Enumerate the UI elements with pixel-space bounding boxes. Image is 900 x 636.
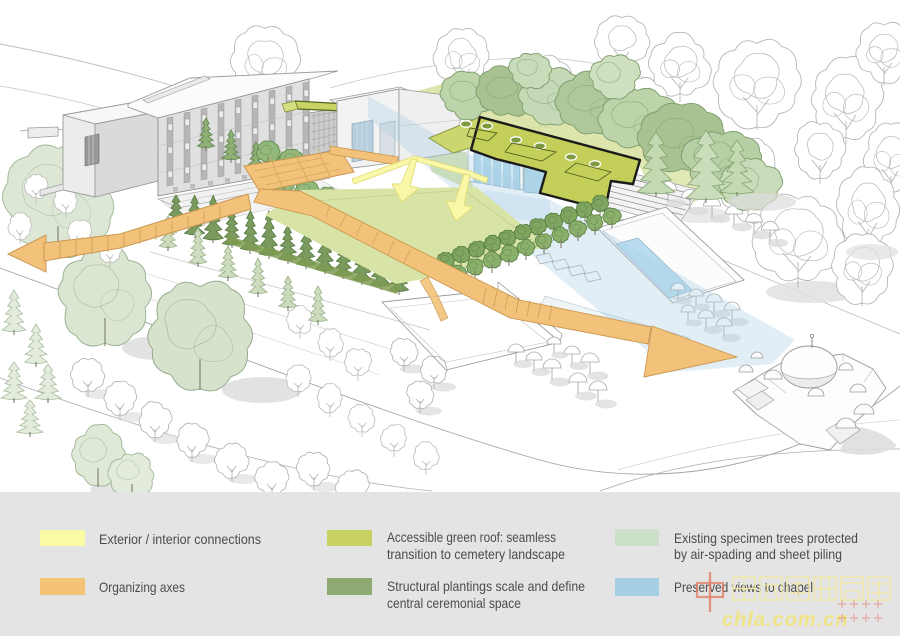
svg-text:central ceremonial space: central ceremonial space <box>387 595 521 611</box>
svg-text:Organizing axes: Organizing axes <box>99 579 185 595</box>
svg-text:Structural plantings scale and: Structural plantings scale and define <box>387 578 585 594</box>
svg-text:transition to cemetery landsca: transition to cemetery landscape <box>387 546 565 562</box>
svg-text:chla.com.cn: chla.com.cn <box>722 609 849 631</box>
svg-text:Accessible green roof: seamles: Accessible green roof: seamless <box>387 529 556 545</box>
svg-text:Exterior / interior connection: Exterior / interior connections <box>99 531 261 547</box>
svg-text:Existing specimen trees protec: Existing specimen trees protected <box>674 530 858 546</box>
svg-text:by air-spading and sheet pilin: by air-spading and sheet piling <box>674 546 842 562</box>
